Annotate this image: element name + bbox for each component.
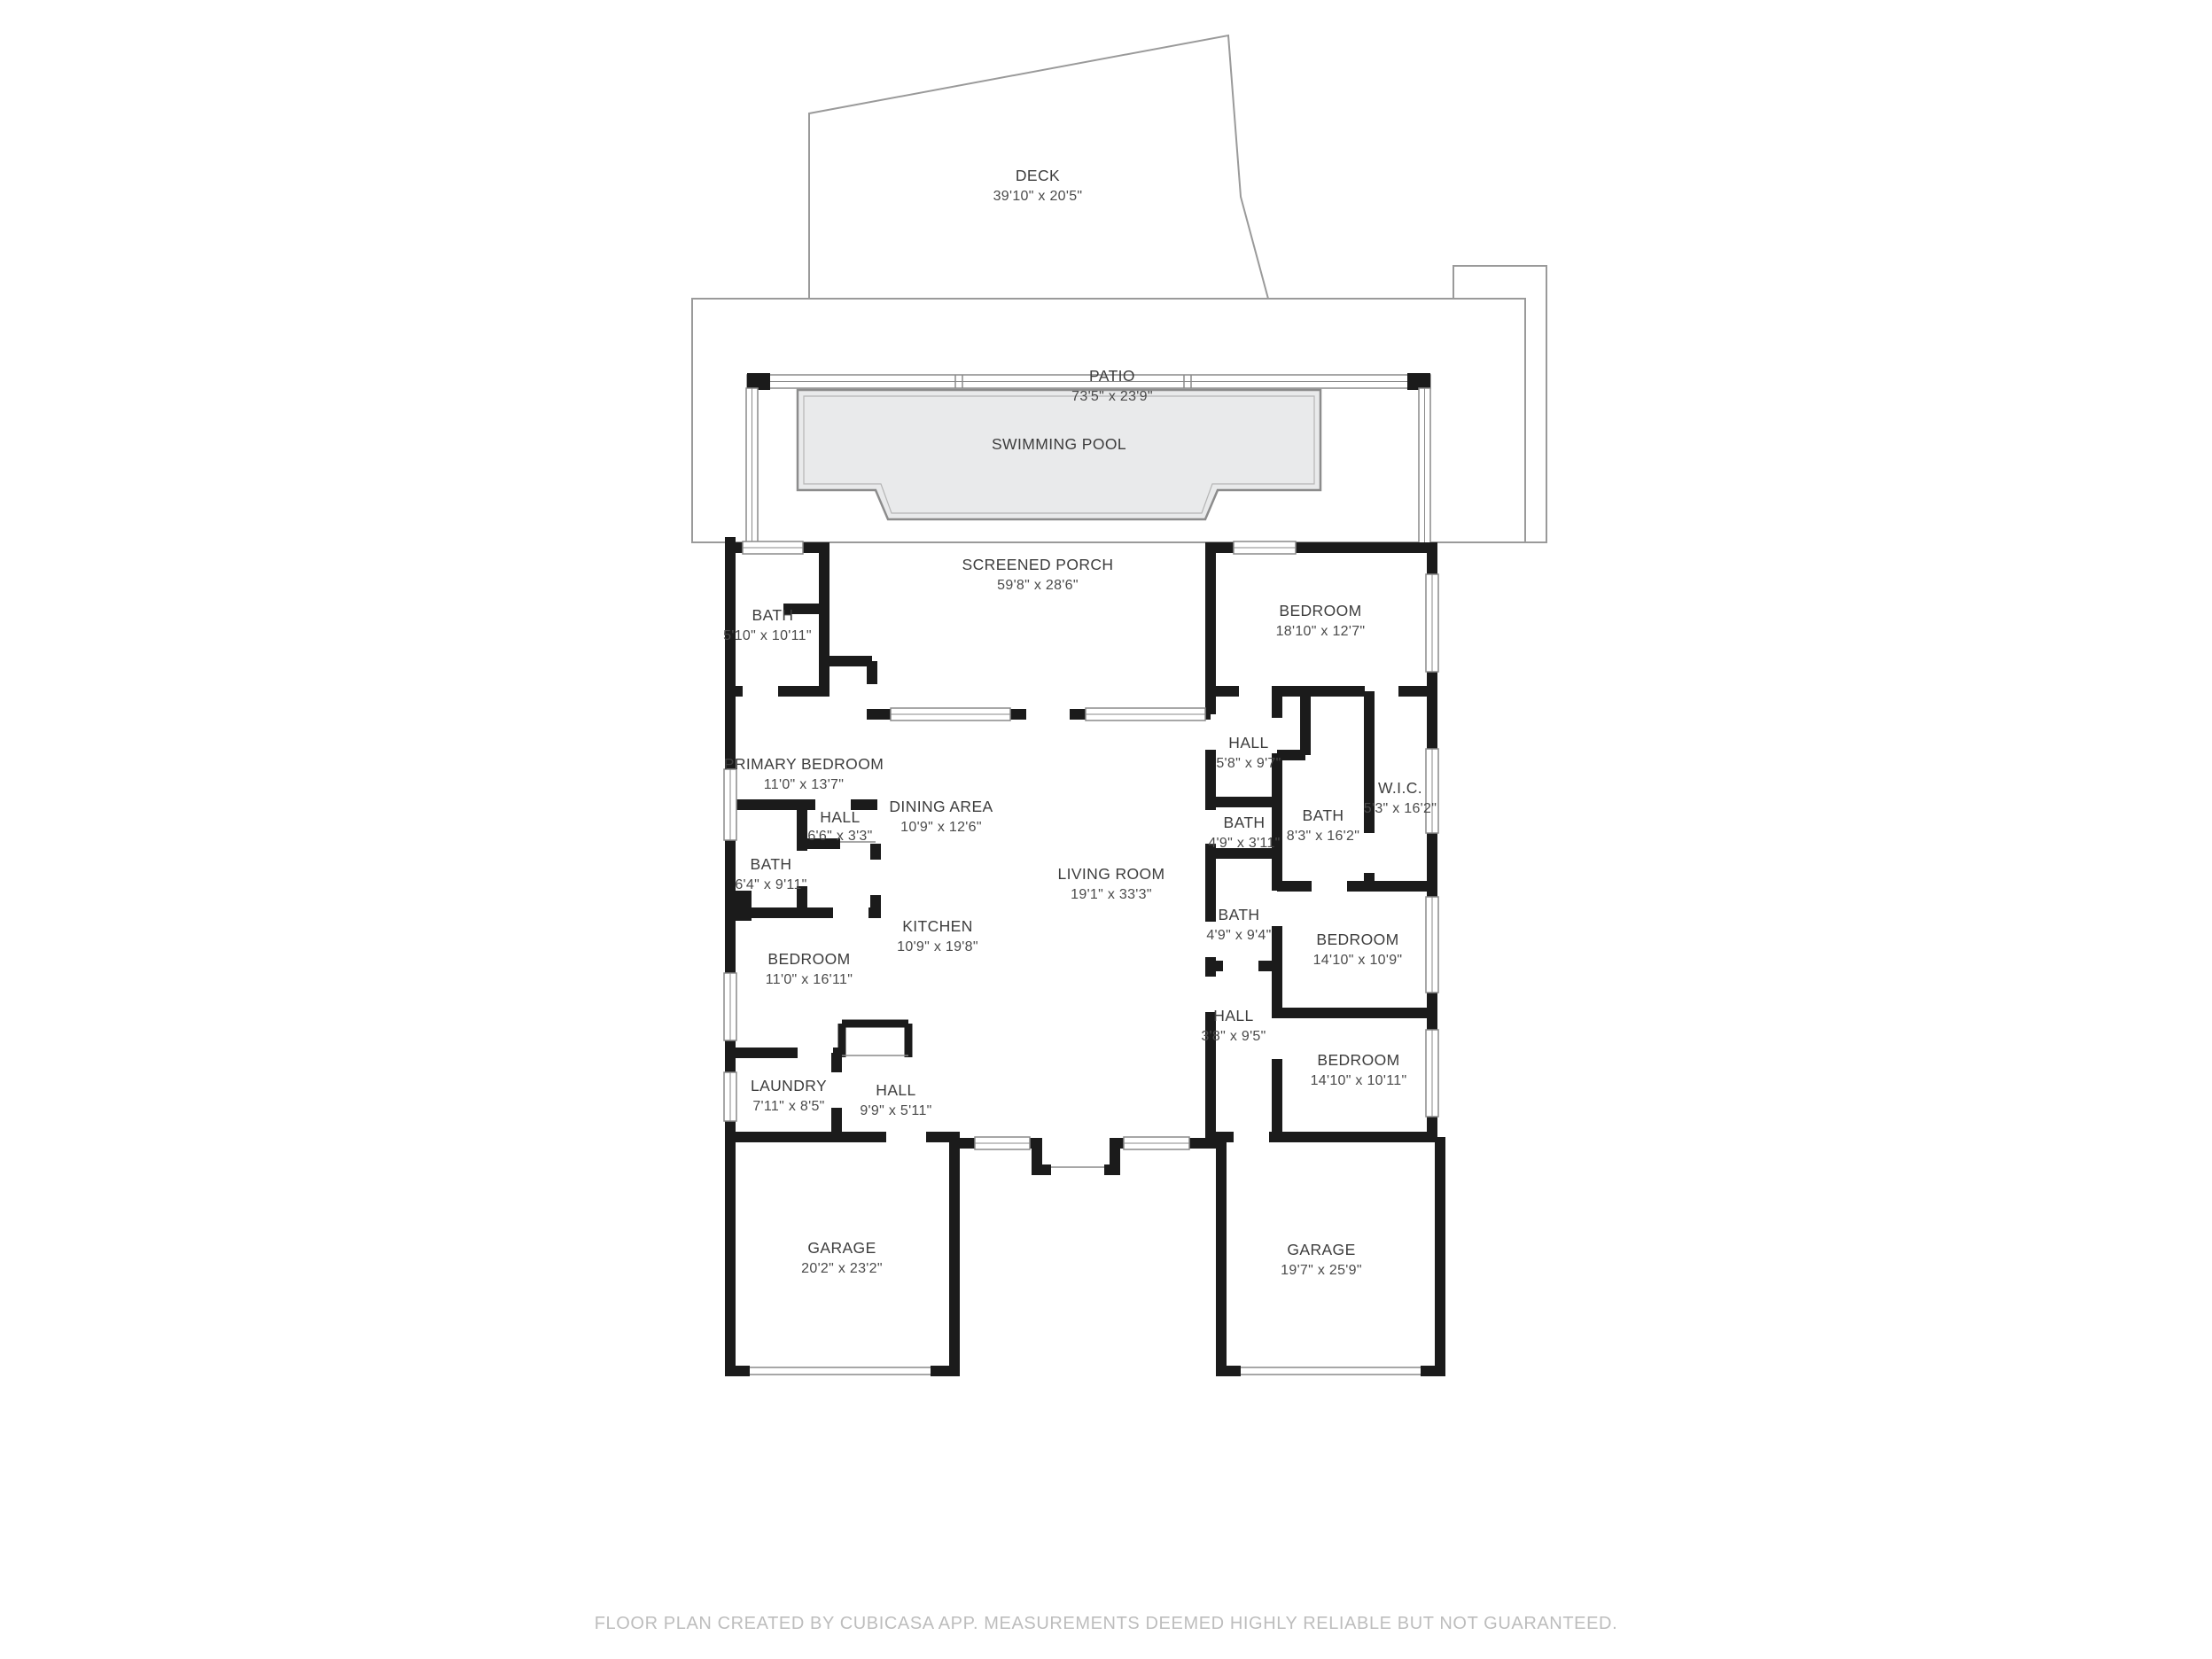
garage-left-label: GARAGE	[807, 1239, 876, 1257]
chimney-block	[725, 891, 752, 921]
wic-dims: 5'3" x 16'2"	[1364, 801, 1437, 816]
hall-lower-right-dims: 3'8" x 9'5"	[1201, 1029, 1266, 1044]
hall-lower-left-label: HALL	[876, 1081, 915, 1099]
garage-right-dims: 19'7" x 25'9"	[1281, 1263, 1362, 1278]
door-openings	[1026, 706, 1070, 722]
living-room-label: LIVING ROOM	[1057, 865, 1164, 883]
wic-label: W.I.C.	[1378, 779, 1422, 797]
patio-dims: 73'5" x 23'9"	[1071, 389, 1153, 404]
bath-upper-left-label: BATH	[752, 606, 794, 624]
porch-post-right	[1407, 373, 1430, 390]
floor-plan-page: DECK 39'10" x 20'5" PATIO 73'5" x 23'9" …	[0, 0, 2212, 1659]
bath-ensuite-right-dims: 8'3" x 16'2"	[1287, 829, 1359, 844]
hall-left-dims: 6'6" x 3'3"	[807, 829, 872, 844]
bath-upper-left-dims: 5'10" x 10'11"	[723, 628, 812, 643]
kitchen-label: KITCHEN	[902, 917, 973, 935]
dining-area-label: DINING AREA	[889, 798, 993, 815]
bath-mid-right-label: BATH	[1219, 906, 1260, 923]
bedroom-left-dims: 11'0" x 16'11"	[766, 972, 853, 987]
hall-upper-right-label: HALL	[1228, 734, 1268, 752]
primary-bedroom-label: PRIMARY BEDROOM	[724, 755, 884, 773]
hall-upper-right-dims: 5'8" x 9'7"	[1216, 756, 1281, 771]
kitchen-dims: 10'9" x 19'8"	[897, 939, 978, 954]
garage-doors	[750, 1367, 1421, 1375]
dining-area-dims: 10'9" x 12'6"	[900, 820, 982, 835]
footer-disclaimer: FLOOR PLAN CREATED BY CUBICASA APP. MEAS…	[595, 1614, 1618, 1633]
bath-powder-right-dims: 4'9" x 3'11"	[1208, 836, 1280, 851]
garage-right-label: GARAGE	[1287, 1241, 1355, 1258]
patio-label: PATIO	[1089, 367, 1135, 385]
bath-left-dims: 6'4" x 9'11"	[735, 877, 806, 892]
living-room-dims: 19'1" x 33'3"	[1071, 887, 1152, 902]
primary-bedroom-dims: 11'0" x 13'7"	[764, 777, 844, 792]
bath-ensuite-right-label: BATH	[1303, 806, 1344, 824]
hall-lower-left-dims: 9'9" x 5'11"	[860, 1103, 931, 1118]
bedroom-upper-right-label: BEDROOM	[1279, 602, 1361, 619]
floor-plan-canvas: DECK 39'10" x 20'5" PATIO 73'5" x 23'9" …	[0, 0, 2212, 1659]
bedroom-upper-right-dims: 18'10" x 12'7"	[1276, 624, 1366, 639]
porch-post-left	[747, 373, 770, 390]
bedroom-mid-right-dims: 14'10" x 10'9"	[1313, 953, 1403, 968]
bath-mid-right-dims: 4'9" x 9'4"	[1206, 928, 1271, 943]
bedroom-left-label: BEDROOM	[767, 950, 850, 968]
screened-porch-label: SCREENED PORCH	[962, 556, 1114, 573]
bedroom-lower-right-dims: 14'10" x 10'11"	[1311, 1073, 1407, 1088]
bedroom-mid-right-label: BEDROOM	[1316, 931, 1398, 948]
garage-left-dims: 20'2" x 23'2"	[801, 1261, 883, 1276]
swimming-pool-label: SWIMMING POOL	[992, 435, 1126, 453]
hall-lower-right-label: HALL	[1213, 1007, 1253, 1024]
deck-dims: 39'10" x 20'5"	[993, 189, 1083, 204]
laundry-label: LAUNDRY	[751, 1077, 827, 1094]
screened-porch-dims: 59'8" x 28'6"	[997, 578, 1079, 593]
bath-powder-right-label: BATH	[1224, 814, 1266, 831]
laundry-dims: 7'11" x 8'5"	[752, 1099, 824, 1114]
hall-left-label: HALL	[820, 808, 860, 826]
bath-left-label: BATH	[751, 855, 792, 873]
bedroom-lower-right-label: BEDROOM	[1317, 1051, 1399, 1069]
deck-label: DECK	[1016, 167, 1060, 184]
